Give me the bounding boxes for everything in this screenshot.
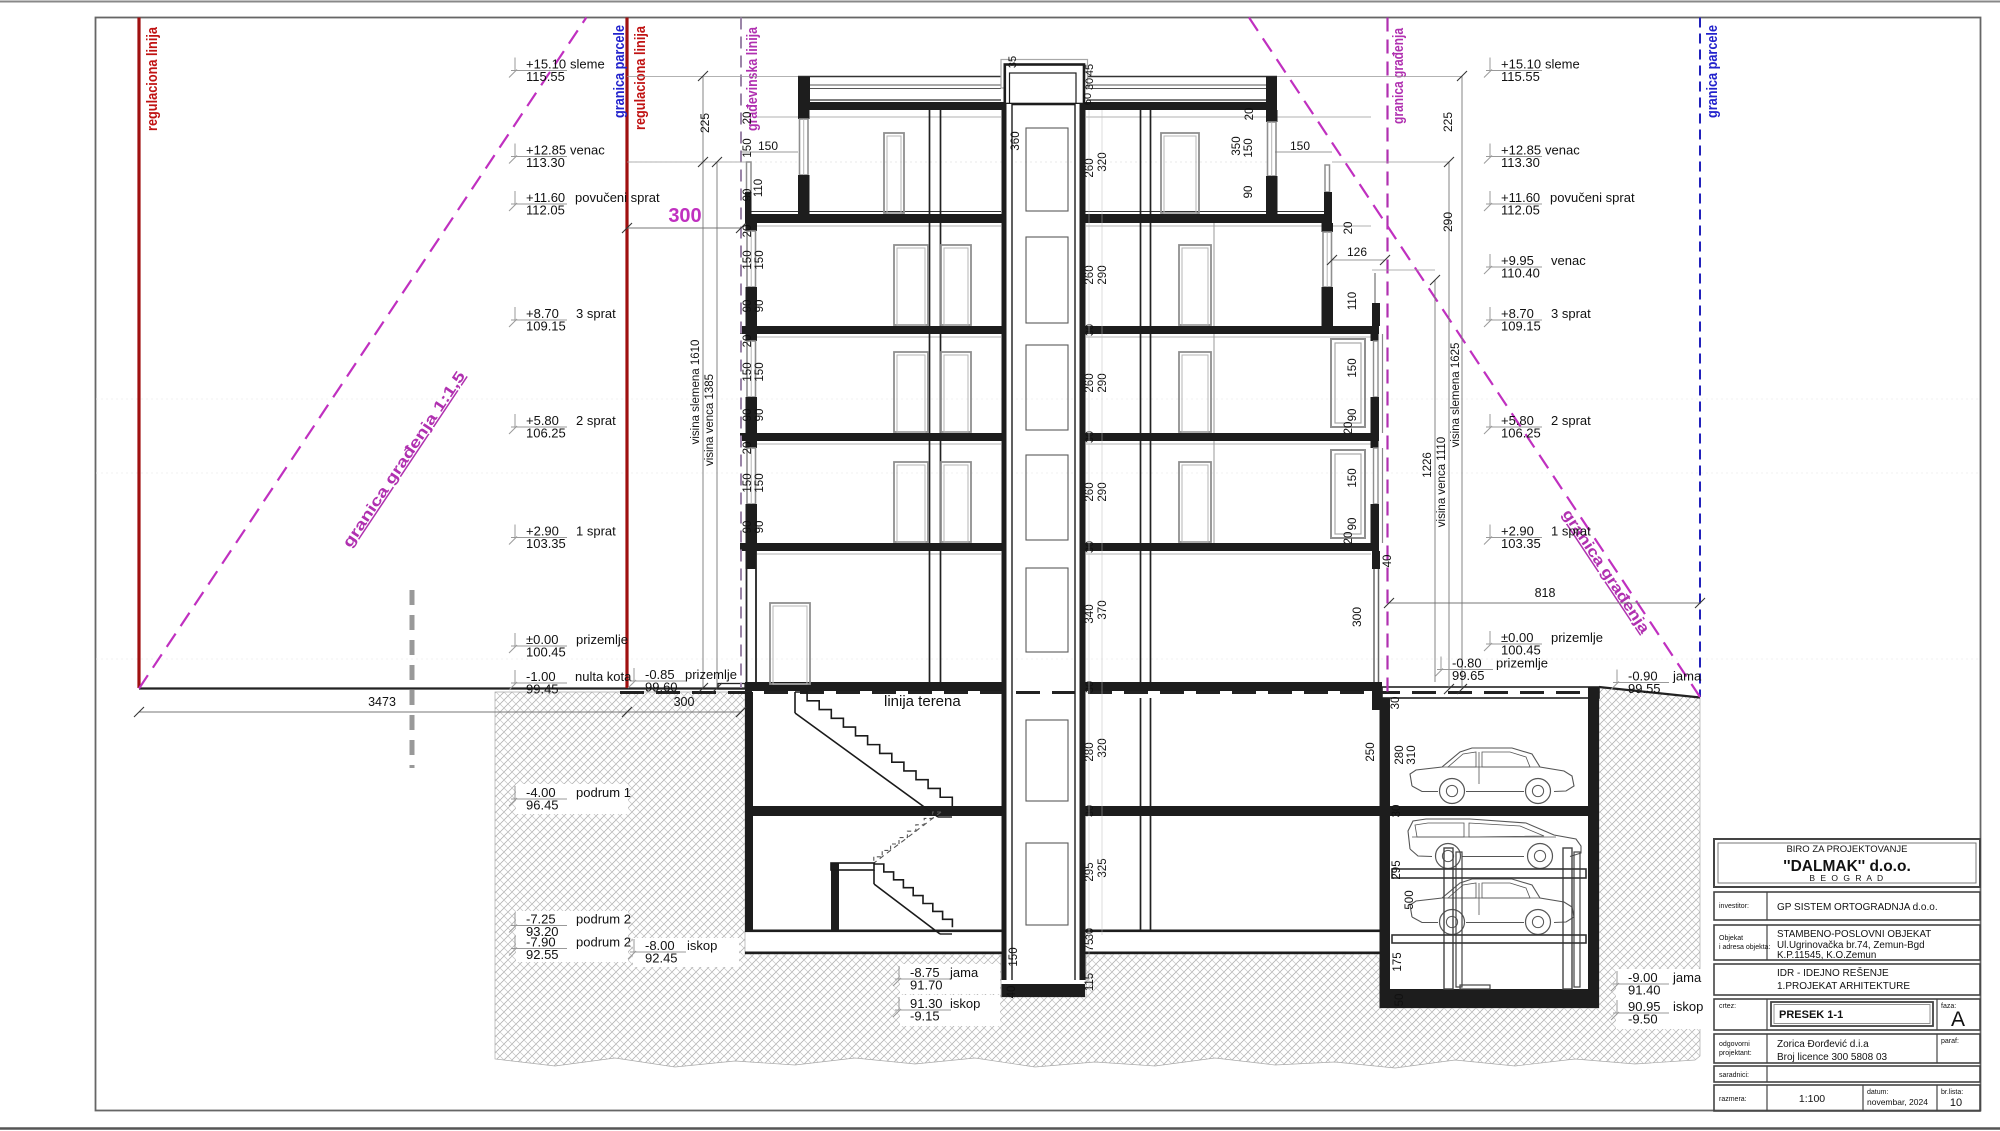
svg-text:115.55: 115.55 bbox=[526, 69, 565, 84]
svg-text:370: 370 bbox=[1097, 600, 1109, 619]
svg-text:280: 280 bbox=[1394, 745, 1406, 764]
svg-text:225: 225 bbox=[698, 113, 712, 133]
svg-text:B E O G R A D: B E O G R A D bbox=[1809, 873, 1884, 883]
svg-text:iskop: iskop bbox=[1673, 999, 1703, 1014]
svg-text:sleme: sleme bbox=[570, 57, 605, 72]
svg-text:razmera:: razmera: bbox=[1719, 1096, 1747, 1103]
svg-text:110: 110 bbox=[753, 179, 765, 197]
svg-text:150: 150 bbox=[742, 138, 754, 157]
svg-text:linija terena: linija terena bbox=[884, 693, 961, 710]
svg-text:30: 30 bbox=[1390, 697, 1402, 710]
svg-text:Objekat: Objekat bbox=[1719, 935, 1743, 942]
svg-text:3 sprat: 3 sprat bbox=[576, 306, 616, 321]
svg-text:A: A bbox=[1951, 1008, 1965, 1031]
svg-text:30: 30 bbox=[1084, 541, 1096, 553]
svg-text:20: 20 bbox=[1244, 108, 1256, 121]
svg-text:150: 150 bbox=[1243, 138, 1255, 157]
svg-text:90: 90 bbox=[742, 300, 754, 313]
svg-text:podrum 1: podrum 1 bbox=[576, 785, 631, 800]
svg-text:2 sprat: 2 sprat bbox=[576, 413, 616, 428]
svg-text:90: 90 bbox=[754, 409, 766, 422]
svg-text:visina slemena 1625: visina slemena 1625 bbox=[1450, 343, 1462, 448]
svg-text:250: 250 bbox=[1365, 742, 1377, 761]
svg-text:povučeni sprat: povučeni sprat bbox=[1550, 190, 1635, 205]
svg-text:paraf:: paraf: bbox=[1941, 1038, 1959, 1045]
svg-text:40: 40 bbox=[1006, 986, 1018, 999]
svg-text:30: 30 bbox=[1084, 431, 1096, 443]
svg-text:visina slemena 1610: visina slemena 1610 bbox=[690, 340, 702, 445]
svg-text:290: 290 bbox=[1097, 373, 1109, 392]
svg-text:3473: 3473 bbox=[368, 695, 396, 709]
svg-text:crtez:: crtez: bbox=[1719, 1003, 1736, 1010]
svg-text:100.45: 100.45 bbox=[526, 645, 566, 660]
svg-text:saradnici:: saradnici: bbox=[1719, 1072, 1749, 1079]
svg-text:150: 150 bbox=[754, 473, 766, 492]
svg-text:granica parcele: granica parcele bbox=[1704, 25, 1721, 118]
svg-text:103.35: 103.35 bbox=[526, 536, 566, 551]
svg-text:investitor:: investitor: bbox=[1719, 903, 1749, 910]
svg-text:290: 290 bbox=[1097, 482, 1109, 501]
svg-text:i adresa objekta:: i adresa objekta: bbox=[1719, 944, 1770, 951]
svg-text:91.40: 91.40 bbox=[1628, 983, 1661, 998]
svg-text:300: 300 bbox=[668, 205, 701, 227]
svg-text:novembar, 2024: novembar, 2024 bbox=[1867, 1097, 1928, 1107]
svg-text:IDR - IDEJNO REŠENJE: IDR - IDEJNO REŠENJE bbox=[1777, 966, 1889, 979]
svg-text:granica parcele: granica parcele bbox=[611, 25, 628, 118]
svg-text:110: 110 bbox=[1347, 292, 1359, 310]
svg-text:30: 30 bbox=[1084, 928, 1096, 940]
svg-text:venac: venac bbox=[1551, 253, 1586, 268]
svg-text:109.15: 109.15 bbox=[526, 319, 566, 334]
svg-text:GP SISTEM ORTOGRADNJA d.o.o.: GP SISTEM ORTOGRADNJA d.o.o. bbox=[1777, 902, 1938, 913]
svg-text:150: 150 bbox=[754, 250, 766, 269]
svg-text:jama: jama bbox=[949, 965, 979, 980]
svg-text:1226: 1226 bbox=[1422, 452, 1434, 478]
svg-text:podrum 2: podrum 2 bbox=[576, 912, 631, 927]
svg-text:112.05: 112.05 bbox=[1501, 203, 1540, 218]
svg-text:103.35: 103.35 bbox=[1501, 536, 1541, 551]
svg-text:150: 150 bbox=[758, 139, 778, 153]
svg-text:90: 90 bbox=[742, 521, 754, 534]
svg-text:20: 20 bbox=[1343, 422, 1355, 435]
svg-text:venac: venac bbox=[1545, 143, 1580, 158]
svg-text:sleme: sleme bbox=[1545, 57, 1580, 72]
svg-text:360: 360 bbox=[1010, 131, 1022, 150]
svg-text:20: 20 bbox=[742, 335, 754, 348]
svg-text:nulta kota: nulta kota bbox=[575, 669, 632, 684]
svg-text:150: 150 bbox=[742, 362, 754, 381]
svg-text:Broj licence 300 5808 03: Broj licence 300 5808 03 bbox=[1777, 1052, 1888, 1063]
svg-text:115.55: 115.55 bbox=[1501, 69, 1540, 84]
svg-text:90: 90 bbox=[742, 409, 754, 422]
svg-text:prizemlje: prizemlje bbox=[576, 632, 628, 647]
svg-text:260: 260 bbox=[1084, 265, 1096, 284]
svg-text:112.05: 112.05 bbox=[526, 203, 565, 218]
svg-text:visina venca 1110: visina venca 1110 bbox=[1436, 437, 1448, 527]
svg-text:310: 310 bbox=[1406, 745, 1418, 764]
svg-text:30: 30 bbox=[1084, 805, 1096, 817]
svg-text:br.lista:: br.lista: bbox=[1941, 1089, 1963, 1096]
svg-text:iskop: iskop bbox=[950, 996, 980, 1011]
svg-text:110.40: 110.40 bbox=[1501, 266, 1540, 281]
svg-text:60: 60 bbox=[1082, 93, 1094, 105]
svg-text:jama: jama bbox=[1672, 970, 1702, 985]
svg-text:150: 150 bbox=[1347, 358, 1359, 377]
svg-text:175: 175 bbox=[1392, 952, 1404, 971]
svg-text:260: 260 bbox=[1084, 373, 1096, 392]
svg-text:96.45: 96.45 bbox=[526, 798, 559, 813]
svg-text:150: 150 bbox=[1290, 139, 1310, 153]
svg-text:35: 35 bbox=[1007, 56, 1019, 68]
svg-text:150: 150 bbox=[754, 362, 766, 381]
svg-text:prizemlje: prizemlje bbox=[685, 667, 737, 682]
svg-text:1 sprat: 1 sprat bbox=[576, 524, 616, 539]
svg-text:50: 50 bbox=[1394, 994, 1406, 1007]
svg-text:2 sprat: 2 sprat bbox=[1551, 413, 1591, 428]
svg-text:45: 45 bbox=[1084, 64, 1096, 76]
svg-text:99.45: 99.45 bbox=[526, 682, 559, 697]
svg-text:30: 30 bbox=[1391, 805, 1403, 818]
svg-text:90: 90 bbox=[1347, 518, 1359, 531]
svg-text:109.15: 109.15 bbox=[1501, 319, 1541, 334]
svg-text:90: 90 bbox=[754, 300, 766, 313]
svg-text:1:100: 1:100 bbox=[1799, 1093, 1825, 1105]
svg-text:30: 30 bbox=[1084, 78, 1096, 90]
svg-text:99.60: 99.60 bbox=[645, 680, 678, 695]
svg-text:325: 325 bbox=[1097, 858, 1109, 877]
svg-text:295: 295 bbox=[1084, 862, 1096, 881]
svg-text:260: 260 bbox=[1084, 482, 1096, 501]
svg-text:500: 500 bbox=[1404, 890, 1416, 909]
svg-text:30: 30 bbox=[1084, 324, 1096, 336]
svg-text:115: 115 bbox=[1084, 973, 1096, 991]
svg-text:Zorica Đorđević d.i.a: Zorica Đorđević d.i.a bbox=[1777, 1039, 1869, 1050]
svg-text:92.45: 92.45 bbox=[645, 951, 678, 966]
svg-text:20: 20 bbox=[742, 225, 754, 238]
svg-text:320: 320 bbox=[1097, 152, 1109, 171]
svg-text:260: 260 bbox=[1084, 158, 1096, 177]
svg-text:818: 818 bbox=[1535, 586, 1556, 600]
svg-text:150: 150 bbox=[742, 473, 754, 492]
svg-text:BIRO ZA PROJEKTOVANJE: BIRO ZA PROJEKTOVANJE bbox=[1786, 844, 1907, 855]
svg-text:venac: venac bbox=[570, 143, 605, 158]
svg-text:1.PROJEKAT ARHITEKTURE: 1.PROJEKAT ARHITEKTURE bbox=[1777, 981, 1910, 992]
svg-text:10: 10 bbox=[1950, 1097, 1962, 1109]
svg-text:iskop: iskop bbox=[687, 938, 717, 953]
svg-text:99.65: 99.65 bbox=[1452, 668, 1485, 683]
svg-text:prizemlje: prizemlje bbox=[1496, 656, 1548, 671]
svg-text:K.P.11545, K.O.Zemun: K.P.11545, K.O.Zemun bbox=[1777, 950, 1876, 961]
svg-text:320: 320 bbox=[1097, 738, 1109, 757]
svg-text:150: 150 bbox=[1008, 947, 1020, 966]
svg-text:datum:: datum: bbox=[1867, 1089, 1888, 1096]
svg-text:280: 280 bbox=[1084, 742, 1096, 761]
svg-text:20: 20 bbox=[1343, 532, 1355, 545]
svg-text:92.55: 92.55 bbox=[526, 947, 559, 962]
svg-text:20: 20 bbox=[742, 442, 754, 455]
svg-text:99.55: 99.55 bbox=[1628, 681, 1661, 696]
svg-text:40: 40 bbox=[1382, 555, 1394, 568]
svg-text:350: 350 bbox=[1231, 136, 1243, 155]
svg-text:90: 90 bbox=[1347, 409, 1359, 422]
svg-text:1 sprat: 1 sprat bbox=[1551, 524, 1591, 539]
svg-text:113.30: 113.30 bbox=[1501, 155, 1540, 170]
svg-text:-9.15: -9.15 bbox=[910, 1009, 940, 1024]
svg-text:340: 340 bbox=[1084, 604, 1096, 623]
svg-text:20: 20 bbox=[742, 112, 754, 125]
svg-text:113.30: 113.30 bbox=[526, 155, 565, 170]
svg-text:90: 90 bbox=[1243, 186, 1255, 199]
svg-text:91.70: 91.70 bbox=[910, 978, 943, 993]
svg-text:odgovorni: odgovorni bbox=[1719, 1041, 1750, 1048]
svg-text:126: 126 bbox=[1347, 245, 1367, 259]
svg-text:3 sprat: 3 sprat bbox=[1551, 306, 1591, 321]
svg-text:295: 295 bbox=[1391, 860, 1403, 879]
svg-text:PRESEK 1-1: PRESEK 1-1 bbox=[1779, 1009, 1843, 1021]
svg-text:300: 300 bbox=[674, 695, 695, 709]
svg-text:podrum 2: podrum 2 bbox=[576, 935, 631, 950]
svg-text:granica građenja: granica građenja bbox=[1390, 27, 1407, 124]
svg-text:225: 225 bbox=[1441, 112, 1455, 132]
svg-text:jama: jama bbox=[1672, 669, 1702, 684]
svg-text:150: 150 bbox=[742, 250, 754, 269]
svg-text:regulaciona linija: regulaciona linija bbox=[144, 26, 161, 131]
svg-text:20: 20 bbox=[1343, 222, 1355, 235]
svg-text:regulaciona linija: regulaciona linija bbox=[632, 25, 649, 130]
svg-text:prizemlje: prizemlje bbox=[1551, 630, 1603, 645]
svg-text:106.25: 106.25 bbox=[1501, 426, 1541, 441]
svg-text:106.25: 106.25 bbox=[526, 426, 566, 441]
svg-text:300: 300 bbox=[1350, 607, 1364, 627]
svg-text:150: 150 bbox=[1347, 468, 1359, 487]
svg-text:290: 290 bbox=[1097, 265, 1109, 284]
svg-text:povučeni sprat: povučeni sprat bbox=[575, 190, 660, 205]
svg-text:290: 290 bbox=[1441, 212, 1455, 232]
svg-text:-9.50: -9.50 bbox=[1628, 1012, 1658, 1027]
svg-text:STAMBENO-POSLOVNI OBJEKAT: STAMBENO-POSLOVNI OBJEKAT bbox=[1777, 929, 1931, 940]
svg-text:visina venca 1385: visina venca 1385 bbox=[704, 374, 716, 466]
svg-text:90: 90 bbox=[754, 521, 766, 534]
svg-text:30: 30 bbox=[1084, 681, 1096, 693]
svg-text:projektant:: projektant: bbox=[1719, 1050, 1752, 1057]
